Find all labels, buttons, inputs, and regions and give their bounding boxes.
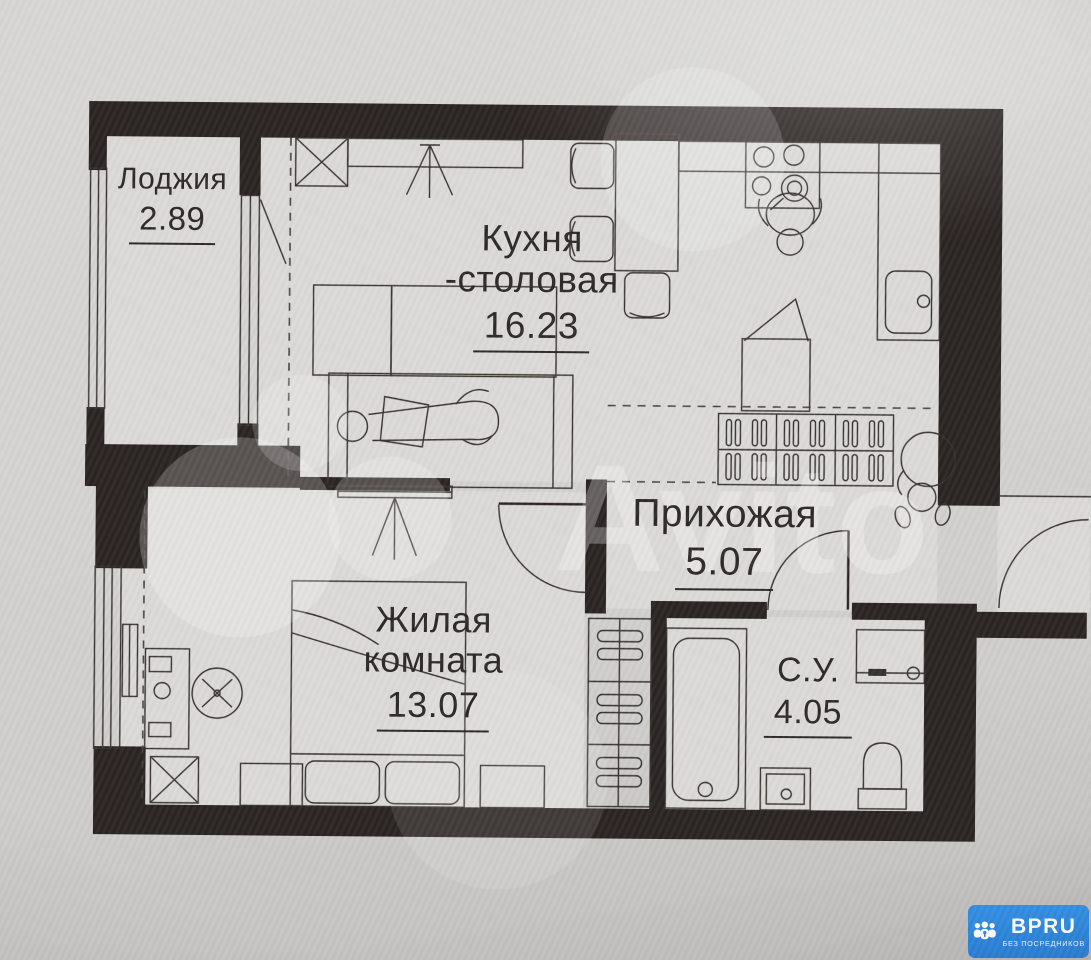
room-label-loggia: Лоджия 2.89 bbox=[102, 162, 243, 245]
living-name-line2: комната bbox=[308, 639, 558, 681]
kitchen-area: 16.23 bbox=[474, 302, 590, 353]
living-area: 13.07 bbox=[377, 682, 490, 732]
hallway-area: 5.07 bbox=[675, 538, 773, 592]
people-group-icon bbox=[972, 919, 997, 945]
hallway-name: Прихожая bbox=[595, 491, 855, 537]
kitchen-name-line2: -столовая bbox=[392, 258, 672, 302]
bpru-logo-badge: BPRU БЕЗ ПОСРЕДНИКОВ bbox=[968, 905, 1089, 958]
loggia-area: 2.89 bbox=[129, 198, 216, 245]
floor-plan-photo: Avito Лоджия 2.89 Кухня -столовая 16.23 … bbox=[0, 0, 1091, 960]
living-name-line1: Жилая bbox=[309, 599, 559, 641]
floor-plan-drawing: Avito bbox=[0, 0, 1091, 960]
floor-plan: Avito Лоджия 2.89 Кухня -столовая 16.23 … bbox=[0, 0, 1091, 960]
room-label-living: Жилая комната 13.07 bbox=[308, 599, 559, 733]
room-label-bathroom: С.У. 4.05 bbox=[748, 651, 869, 739]
loggia-name: Лоджия bbox=[102, 162, 242, 197]
kitchen-name-line1: Кухня bbox=[392, 217, 672, 261]
bathroom-area: 4.05 bbox=[764, 691, 853, 739]
room-label-hallway: Прихожая 5.07 bbox=[594, 491, 855, 592]
bathroom-name: С.У. bbox=[748, 651, 868, 690]
bpru-logo-text: BPRU bbox=[1011, 916, 1077, 937]
room-label-kitchen: Кухня -столовая 16.23 bbox=[391, 217, 672, 355]
bpru-tagline: БЕЗ ПОСРЕДНИКОВ bbox=[1002, 940, 1085, 947]
living-room-window bbox=[94, 566, 122, 748]
